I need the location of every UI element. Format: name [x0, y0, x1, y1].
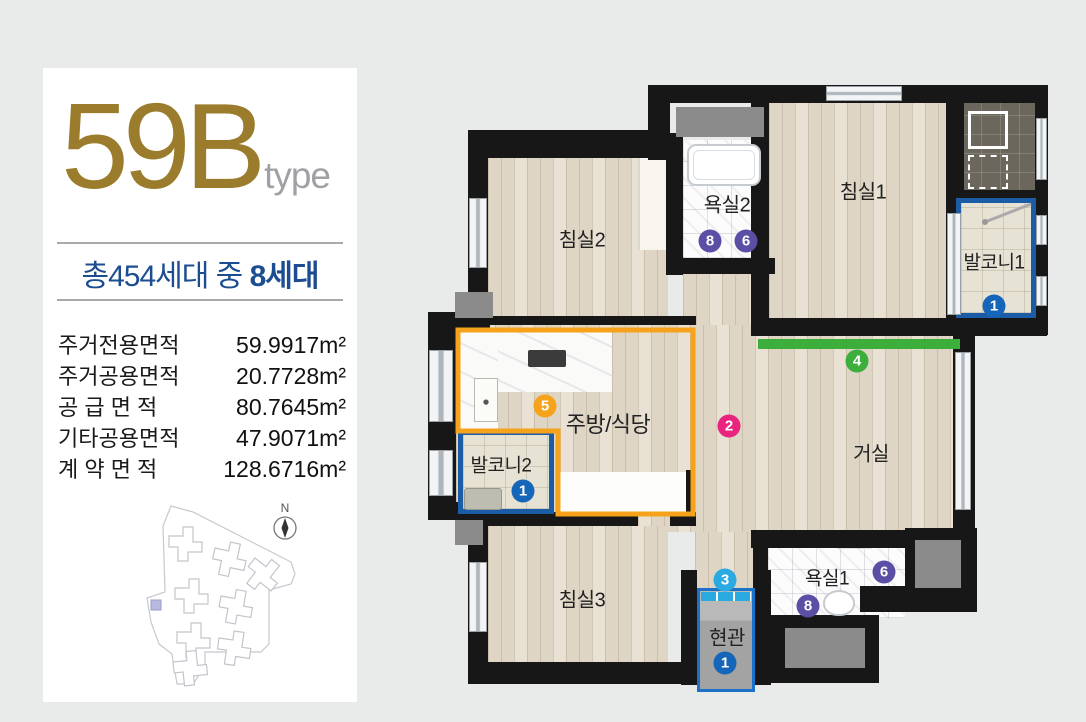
- area-value: 47.9071m²: [236, 425, 346, 452]
- area-value: 80.7645m²: [236, 394, 346, 421]
- badge-5-kitchen: 5: [534, 395, 557, 418]
- badge-1-balcony2: 1: [512, 480, 535, 503]
- plan-overlays: [428, 83, 1048, 700]
- room-label-entrance: 현관: [709, 622, 745, 651]
- badge-1-entrance: 1: [714, 652, 737, 675]
- badge-3-entrance-door: 3: [714, 569, 737, 592]
- room-label-living-room: 거실: [853, 438, 889, 467]
- badge-6-bathroom1: 6: [873, 561, 896, 584]
- room-label-bedroom2: 침실2: [559, 224, 605, 253]
- site-boundary: [147, 506, 295, 684]
- room-label-bedroom1: 침실1: [840, 176, 886, 205]
- area-label: 기타공용면적: [58, 421, 179, 453]
- badge-4-living-wall: 4: [846, 350, 869, 373]
- table-row: 주거전용면적 59.9917m²: [58, 328, 346, 359]
- floor-plan: 침실2 욕실2 침실1 발코니1 주방/식당 거실 발코니2 침실3 욕실1 현…: [428, 83, 1048, 700]
- households-line: 총454세대 중 8세대: [43, 251, 357, 295]
- compass-n-label: N: [281, 501, 290, 515]
- balcony1-door-hinge: [982, 219, 988, 225]
- room-label-bedroom3: 침실3: [559, 584, 605, 613]
- balcony1-door-leaf: [985, 204, 1031, 222]
- divider-bottom: [57, 299, 343, 301]
- unit-type-title: 59Btype: [61, 82, 330, 210]
- area-label: 계 약 면 적: [58, 452, 157, 484]
- living-room-green-bar: [758, 339, 960, 349]
- room-label-balcony2: 발코니2: [470, 451, 531, 478]
- badge-6-bathroom2: 6: [735, 230, 758, 253]
- table-row: 공 급 면 적 80.7645m²: [58, 390, 346, 421]
- households-count: 8세대: [250, 260, 319, 293]
- badge-8-bathroom2: 8: [699, 230, 722, 253]
- highlighted-building: [151, 600, 161, 610]
- area-label: 공 급 면 적: [58, 390, 157, 422]
- compass: N: [274, 501, 296, 539]
- area-value: 59.9917m²: [236, 332, 346, 359]
- badge-2-hallway: 2: [718, 415, 741, 438]
- room-label-bathroom2: 욕실2: [704, 189, 750, 218]
- table-row: 기타공용면적 47.9071m²: [58, 421, 346, 452]
- divider-top: [57, 242, 343, 244]
- badge-1-balcony1: 1: [983, 295, 1006, 318]
- area-label: 주거공용면적: [58, 359, 179, 391]
- site-plan-map: N: [73, 496, 328, 696]
- area-label: 주거전용면적: [58, 328, 179, 360]
- badge-8-bathroom1: 8: [797, 595, 820, 618]
- area-value: 128.6716m²: [223, 456, 346, 483]
- info-card: 59Btype 총454세대 중 8세대 주거전용면적 59.9917m² 주거…: [43, 68, 357, 702]
- room-label-balcony1: 발코니1: [963, 248, 1024, 275]
- compass-needle: [282, 518, 289, 538]
- area-value: 20.7728m²: [236, 363, 346, 390]
- table-row: 계 약 면 적 128.6716m²: [58, 452, 346, 483]
- unit-type-suffix: type: [264, 155, 330, 196]
- unit-type-number: 59B: [61, 78, 260, 214]
- room-label-kitchen: 주방/식당: [566, 407, 651, 439]
- table-row: 주거공용면적 20.7728m²: [58, 359, 346, 390]
- room-label-bathroom1: 욕실1: [805, 564, 849, 591]
- area-table: 주거전용면적 59.9917m² 주거공용면적 20.7728m² 공 급 면 …: [58, 328, 346, 483]
- households-prefix: 총454세대 중: [81, 260, 249, 293]
